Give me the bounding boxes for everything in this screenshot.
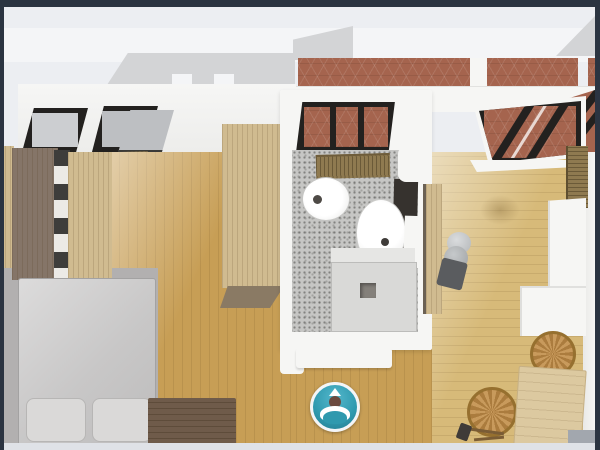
basin-drain [381, 238, 389, 246]
pillow [92, 398, 152, 442]
bathroom-window [294, 102, 398, 152]
bathroom-corner-wall [398, 146, 428, 182]
towel-radiator [316, 153, 391, 179]
door-glass-terrace-view [484, 106, 576, 158]
terrace-wall-divider [470, 58, 487, 88]
marker-chevron-up-icon [329, 388, 341, 396]
terrace-tile-sliver [588, 58, 595, 88]
window-glass-terrace-view [304, 107, 388, 147]
bottom-strip [0, 443, 600, 450]
kitchen-counter-lower [520, 286, 586, 336]
bidet [302, 177, 350, 221]
bidet-drain [313, 195, 322, 204]
terrace-tile-band [298, 58, 578, 88]
pillow [26, 398, 86, 442]
floorplan-viewer-canvas[interactable] [0, 0, 600, 450]
bottom-right-gray-patch [568, 430, 595, 444]
360-viewpoint-marker[interactable] [310, 382, 360, 432]
skylight-glass [32, 113, 78, 147]
floor-shadow-smudge [480, 195, 520, 225]
kitchen-counter-upper [548, 198, 586, 290]
wardrobe-dark [12, 148, 58, 280]
roof-slope [105, 53, 295, 88]
window-top-bar [0, 0, 600, 7]
bathroom-threshold-step [296, 348, 392, 368]
window-left-edge [0, 0, 4, 450]
bed-end-bench [148, 398, 236, 445]
window-frame-bar [358, 107, 364, 147]
shower-tray [331, 262, 417, 332]
shower-drain [360, 283, 376, 298]
marker-person-body-icon [323, 411, 347, 424]
window-frame-bar [330, 107, 336, 147]
window-right-edge [595, 0, 600, 450]
partition-wood-panel [426, 184, 442, 314]
tall-cabinet [222, 124, 284, 288]
